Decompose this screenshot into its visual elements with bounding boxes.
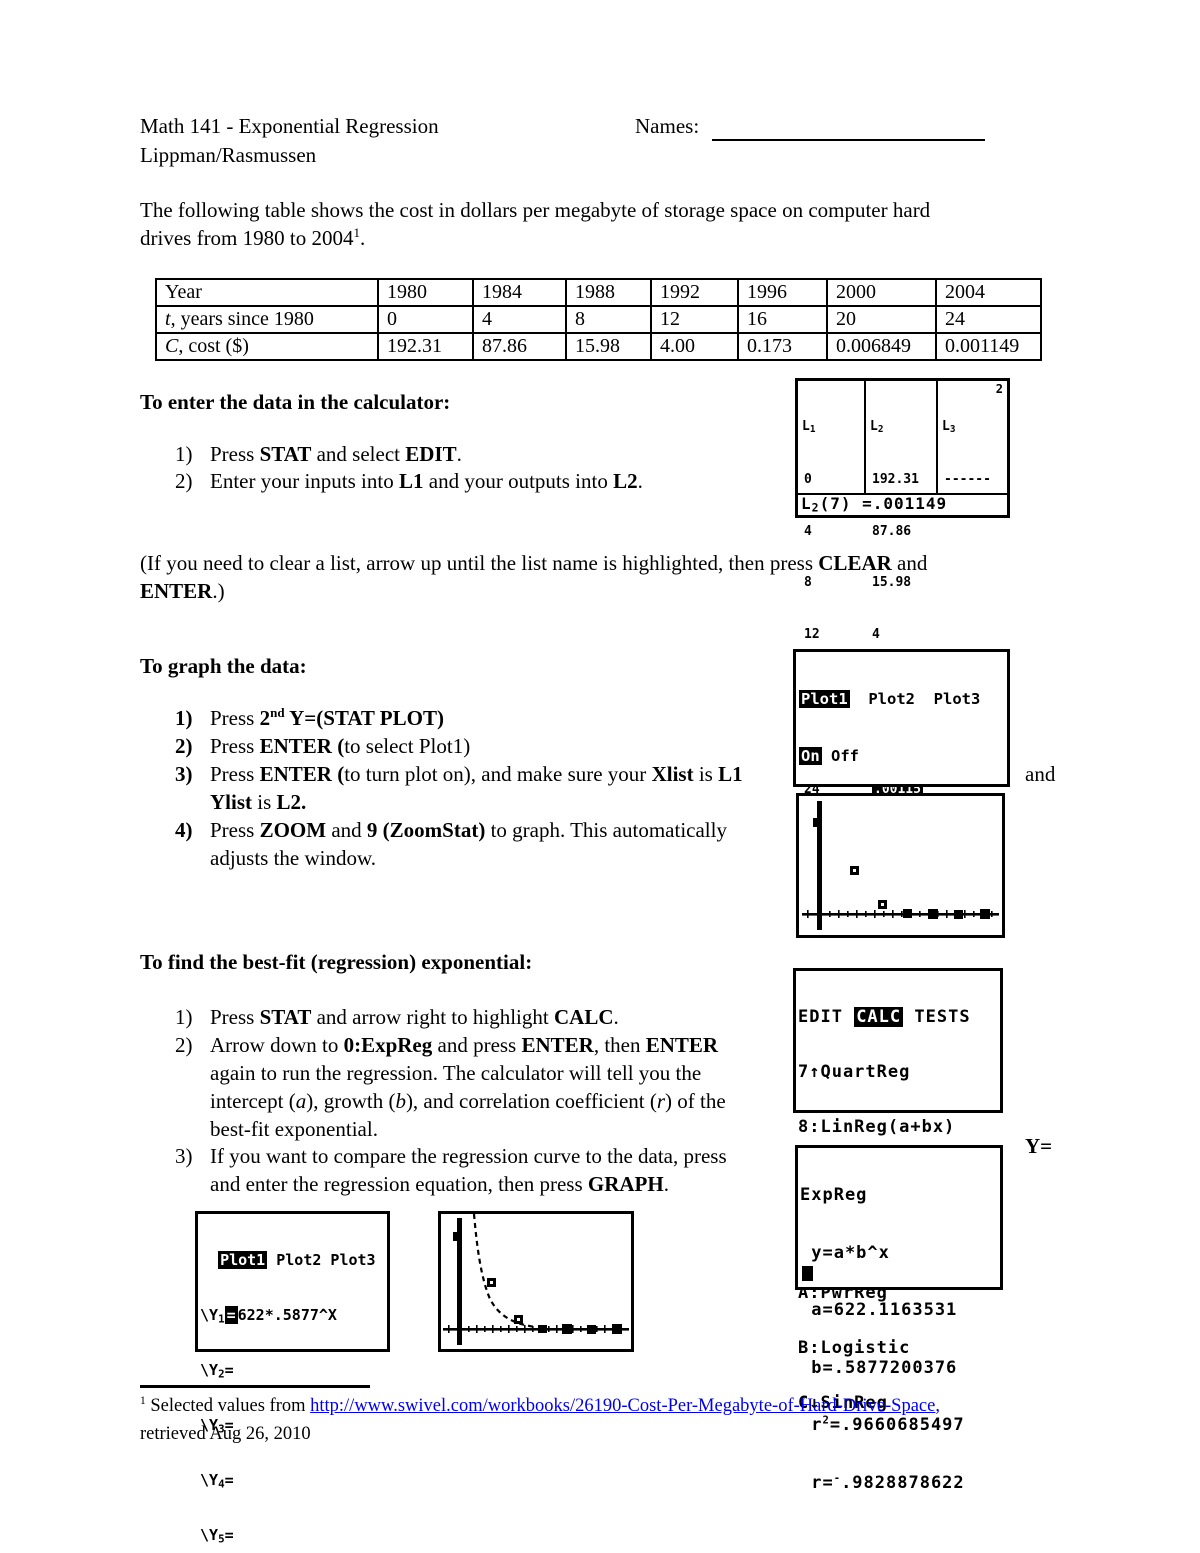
cell: 192.31 xyxy=(378,333,473,360)
cell: 4 xyxy=(473,306,566,333)
stat-plot-setup-screen: Plot1 Plot2 Plot3 On Off Type: Xlist:L1 … xyxy=(793,649,1010,787)
l3-header: L3 xyxy=(938,419,1006,435)
step-text: again to run the regression. The calcula… xyxy=(210,1060,701,1086)
expreg-result-screen: ExpReg y=a*b^x a=622.1163531 b=.58772003… xyxy=(795,1145,1003,1290)
cell: 1984 xyxy=(473,279,566,306)
l2-value: 192.31 xyxy=(866,473,938,487)
l1-value: 4 xyxy=(798,525,864,539)
cell: 16 xyxy=(738,306,827,333)
cell: 0.001149 xyxy=(936,333,1041,360)
step-number: 3) xyxy=(175,761,193,787)
intro-line-1: The following table shows the cost in do… xyxy=(140,197,930,223)
l1-header: L1 xyxy=(798,419,864,435)
expreg-b-value: b=.5877200376 xyxy=(798,1359,1000,1379)
row-label: t, years since 1980 xyxy=(156,306,378,333)
cell: 1980 xyxy=(378,279,473,306)
step-text: Press ENTER (to turn plot on), and make … xyxy=(210,761,743,787)
clear-note-line-1: (If you need to clear a list, arrow up u… xyxy=(140,550,927,576)
current-column-indicator: 2 xyxy=(996,381,1003,397)
wrapped-word-and: and xyxy=(1025,761,1055,787)
table-row-cost: C, cost ($) 192.31 87.86 15.98 4.00 0.17… xyxy=(156,333,1041,360)
list-editor-status-line: L2(7) =.001149 xyxy=(798,493,1007,515)
y-equals-editor-screen: Plot1 Plot2 Plot3 \Y1=622*.5877^X \Y2= \… xyxy=(195,1211,390,1352)
worksheet-page: Math 141 - Exponential Regression Lippma… xyxy=(0,0,1200,1553)
list-l2-column: L2 192.31 87.86 15.98 4 .173 .00685 .001… xyxy=(864,381,938,493)
y1-equation: \Y1=622*.5877^X xyxy=(198,1307,387,1324)
step-text: Press 2nd Y=(STAT PLOT) xyxy=(210,705,444,731)
cell: 4.00 xyxy=(651,333,738,360)
page-title: Math 141 - Exponential Regression xyxy=(140,113,439,139)
section-heading-regression: To find the best-fit (regression) expone… xyxy=(140,949,532,975)
y5-slot: \Y5= xyxy=(198,1527,387,1544)
clear-note-line-2: ENTER.) xyxy=(140,578,225,604)
cell: 20 xyxy=(827,306,936,333)
step-text: Ylist is L2. xyxy=(210,789,306,815)
cell: 2000 xyxy=(827,279,936,306)
cell: 87.86 xyxy=(473,333,566,360)
menu-tabs-line: EDIT CALC TESTS xyxy=(796,1009,1000,1026)
wrapped-word-y-equals: Y= xyxy=(1025,1133,1052,1159)
data-table: Year 1980 1984 1988 1992 1996 2000 2004 … xyxy=(155,278,1042,361)
list-l3-column: L3 ------ xyxy=(936,381,1006,493)
regression-curve xyxy=(474,1214,536,1327)
list-l1-column: L1 0 4 8 12 16 20 24 xyxy=(798,381,864,493)
cell: 0 xyxy=(378,306,473,333)
step-text: Press STAT and select EDIT. xyxy=(210,441,462,467)
step-text: adjusts the window. xyxy=(210,845,376,871)
cell: 2004 xyxy=(936,279,1041,306)
l2-value: 15.98 xyxy=(866,576,938,590)
names-label: Names: xyxy=(635,113,699,139)
cell: 0.173 xyxy=(738,333,827,360)
step-number: 2) xyxy=(175,733,193,759)
step-text: Press ZOOM and 9 (ZoomStat) to graph. Th… xyxy=(210,817,727,843)
y4-slot: \Y4= xyxy=(198,1472,387,1489)
intro-line-2: drives from 1980 to 20041. xyxy=(140,225,365,251)
x-axis xyxy=(443,1328,629,1331)
step-number: 2) xyxy=(175,1032,193,1058)
step-text: Press ENTER (to select Plot1) xyxy=(210,733,470,759)
step-number: 1) xyxy=(175,441,193,467)
expreg-a-value: a=622.1163531 xyxy=(798,1301,1000,1321)
cell: 24 xyxy=(936,306,1041,333)
section-heading-enter-data: To enter the data in the calculator: xyxy=(140,389,450,415)
footnote-line-1[interactable]: 1 Selected values from http://www.swivel… xyxy=(140,1393,940,1419)
step-text: Enter your inputs into L1 and your outpu… xyxy=(210,468,643,494)
cell: 8 xyxy=(566,306,651,333)
cell: 0.006849 xyxy=(827,333,936,360)
x-axis xyxy=(802,913,999,916)
step-number: 1) xyxy=(175,1004,193,1030)
l2-value: 87.86 xyxy=(866,525,938,539)
step-text: intercept (a), growth (b), and correlati… xyxy=(210,1088,726,1114)
step-number: 1) xyxy=(175,705,193,731)
cell: 1992 xyxy=(651,279,738,306)
names-blank-line[interactable] xyxy=(712,115,985,141)
step-text: If you want to compare the regression cu… xyxy=(210,1143,727,1169)
step-number: 4) xyxy=(175,817,193,843)
cursor-block xyxy=(802,1266,813,1281)
data-points xyxy=(813,818,990,919)
menu-item: 7↑QuartReg xyxy=(796,1064,1000,1081)
list-editor-screen: L1 0 4 8 12 16 20 24 L2 192.31 87.86 15.… xyxy=(795,378,1010,518)
authors-line: Lippman/Rasmussen xyxy=(140,142,316,168)
stat-calc-menu-screen: EDIT CALC TESTS 7↑QuartReg 8:LinReg(a+bx… xyxy=(793,968,1003,1113)
step-number: 2) xyxy=(175,468,193,494)
l1-value: 12 xyxy=(798,628,864,642)
l3-empty-value: ------ xyxy=(938,473,1006,487)
scatter-plot-screen xyxy=(796,793,1005,938)
row-label: Year xyxy=(156,279,378,306)
cell: 1988 xyxy=(566,279,651,306)
plot-tabs-line: Plot1 Plot2 Plot3 xyxy=(796,690,1007,709)
section-heading-graph-data: To graph the data: xyxy=(140,653,307,679)
l1-value: 8 xyxy=(798,576,864,590)
l2-value: 4 xyxy=(866,628,938,642)
cell: 15.98 xyxy=(566,333,651,360)
step-text: best-fit exponential. xyxy=(210,1116,378,1142)
l1-value: 0 xyxy=(798,473,864,487)
expreg-title: ExpReg xyxy=(798,1186,1000,1206)
l2-header: L2 xyxy=(866,419,938,435)
step-number: 3) xyxy=(175,1143,193,1169)
regression-graph-graphic xyxy=(441,1214,631,1349)
menu-item: 8:LinReg(a+bx) xyxy=(796,1119,1000,1136)
step-text: Press STAT and arrow right to highlight … xyxy=(210,1004,619,1030)
footnote-line-2: retrieved Aug 26, 2010 xyxy=(140,1421,311,1447)
cell: 12 xyxy=(651,306,738,333)
on-off-line: On Off xyxy=(796,747,1007,766)
step-text: Arrow down to 0:ExpReg and press ENTER, … xyxy=(210,1032,718,1058)
y2-slot: \Y2= xyxy=(198,1362,387,1379)
step-text: and enter the regression equation, then … xyxy=(210,1171,669,1197)
regression-graph-screen xyxy=(438,1211,634,1352)
cell: 1996 xyxy=(738,279,827,306)
expreg-model: y=a*b^x xyxy=(798,1244,1000,1264)
row-label: C, cost ($) xyxy=(156,333,378,360)
table-row-t: t, years since 1980 0 4 8 12 16 20 24 xyxy=(156,306,1041,333)
scatter-plot-graphic xyxy=(799,796,1002,935)
table-row-year: Year 1980 1984 1988 1992 1996 2000 2004 xyxy=(156,279,1041,306)
footnote-separator xyxy=(140,1385,370,1388)
data-points xyxy=(453,1232,622,1334)
plot-tabs-line: Plot1 Plot2 Plot3 xyxy=(198,1252,387,1269)
expreg-r-value: r=-.9828878622 xyxy=(798,1474,1000,1494)
